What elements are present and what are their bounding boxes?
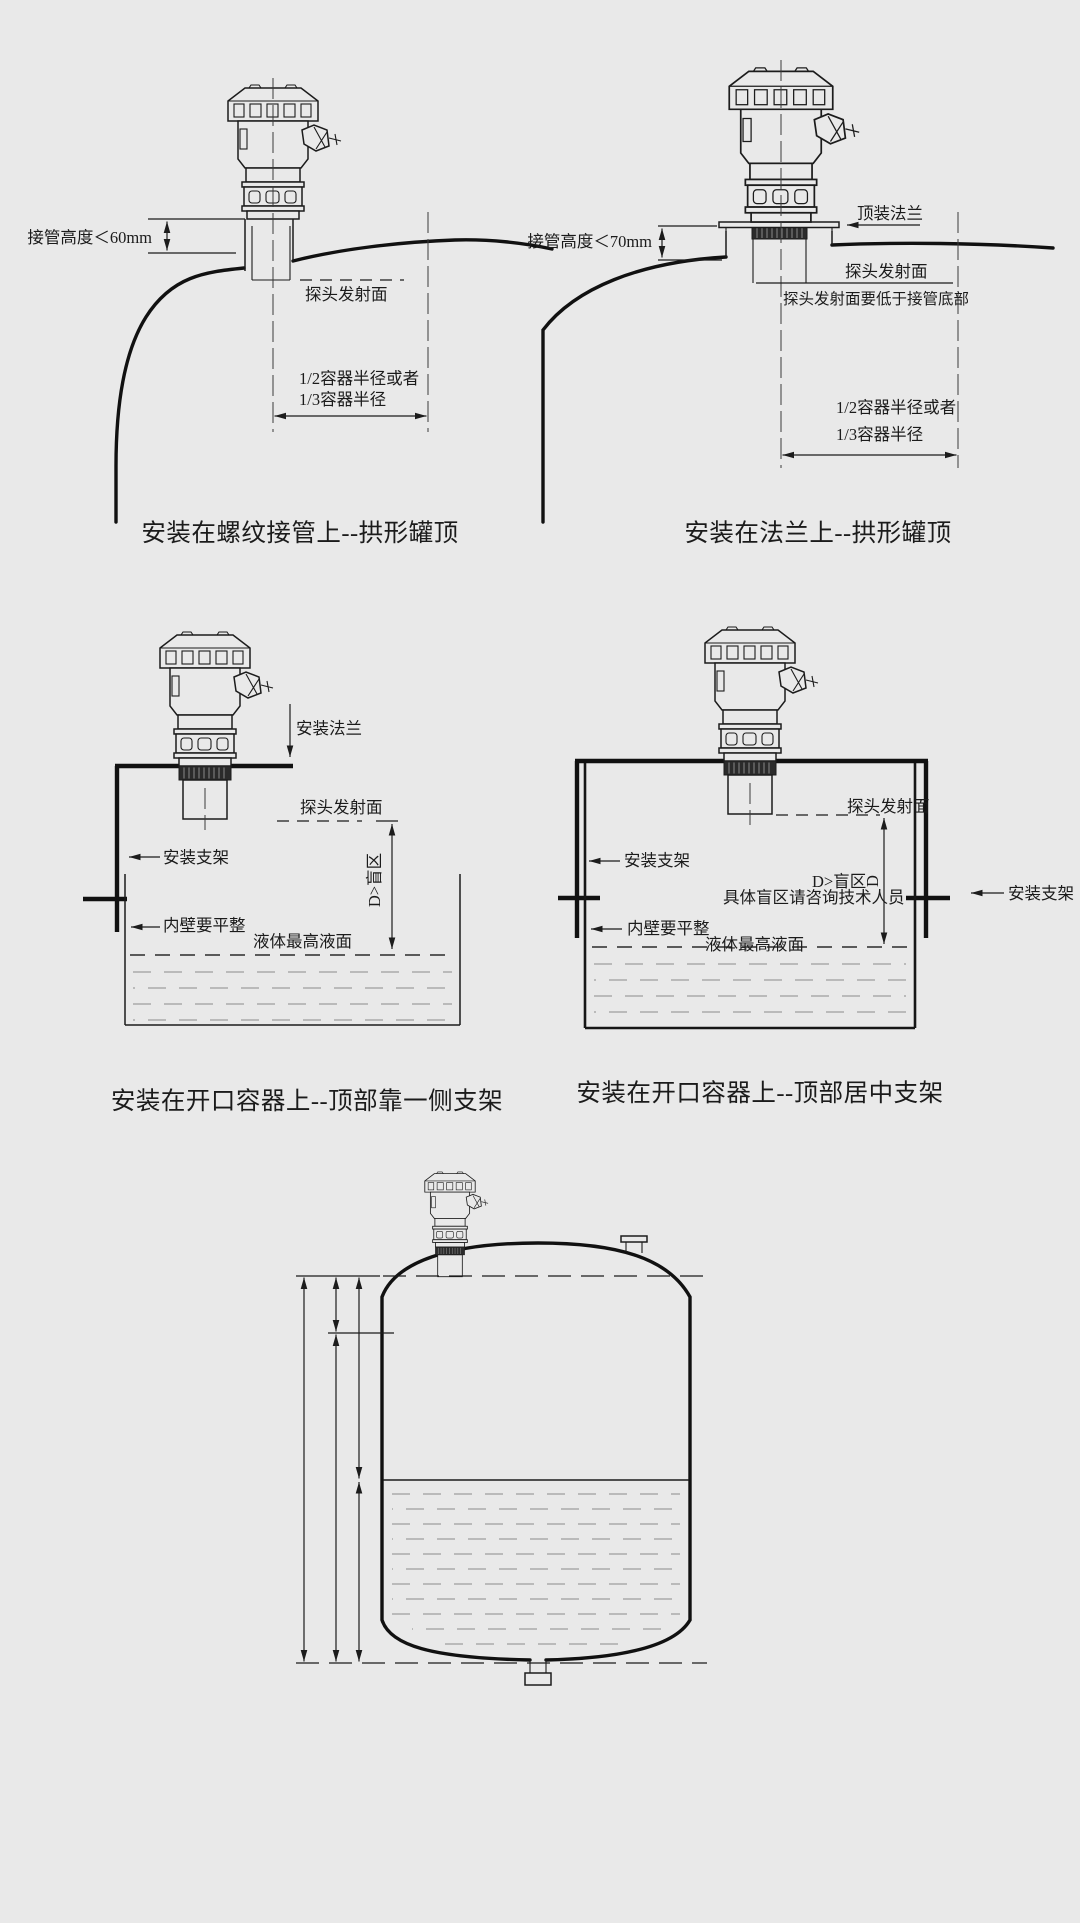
- liquid-fill: [392, 1494, 680, 1644]
- mounting-flange-label: 安装法兰: [296, 719, 362, 738]
- liquid-fill: [594, 964, 906, 1012]
- diagram-measuring-principle: [296, 1172, 707, 1685]
- bracket-label: 安装支架: [163, 848, 229, 867]
- caption-threaded-nozzle: 安装在螺纹接管上--拱形罐顶: [141, 519, 458, 547]
- emitting-face-label: 探头发射面: [300, 798, 383, 817]
- diagram-threaded-nozzle: 接管高度＜60mm 探头发射面 1/2容器半径或者 1/3容器半径 安装在螺纹接…: [27, 78, 552, 547]
- tank-roof-curve-right: [293, 240, 552, 261]
- emitting-face-label: 探头发射面: [847, 797, 930, 816]
- sensor: [705, 627, 818, 761]
- sensor: [729, 68, 859, 222]
- inner-wall-label: 内壁要平整: [163, 916, 246, 935]
- diagram-open-vessel-center-bracket: 探头发射面 D>盲区 D 具体盲区请咨询技术人员 安装支架 安装支架 内壁要平整…: [558, 627, 1074, 1107]
- tank-roof-curve-left: [543, 257, 726, 522]
- sensor: [228, 85, 341, 219]
- radius-label-2: 1/3容器半径: [836, 425, 923, 444]
- probe-horn: [753, 239, 806, 283]
- caption-side-bracket: 安装在开口容器上--顶部靠一侧支架: [111, 1087, 503, 1115]
- sensor: [160, 632, 273, 766]
- diagram-flange-mount: 顶装法兰 接管高度＜70mm 探头发射面 探头发射面要低于接管底部 1/2容器半…: [527, 60, 1053, 547]
- sensor-horn: [435, 1247, 464, 1277]
- tank-roof-curve: [116, 268, 244, 522]
- diagram-open-vessel-side-bracket: 安装法兰 探头发射面 D>盲区 安装支架 内壁要平整 液体最高液面 安装在开口容…: [83, 632, 503, 1115]
- bracket-left-label: 安装支架: [624, 851, 690, 870]
- radius-label-2: 1/3容器半径: [299, 390, 386, 409]
- emitting-face-note: 探头发射面要低于接管底部: [783, 290, 969, 308]
- bracket-right-label: 安装支架: [1008, 884, 1074, 903]
- dimension-d-label: D: [863, 875, 882, 887]
- max-level-label: 液体最高液面: [705, 935, 804, 954]
- top-flange-label: 顶装法兰: [857, 204, 923, 223]
- installation-diagram-sheet: 接管高度＜60mm 探头发射面 1/2容器半径或者 1/3容器半径 安装在螺纹接…: [0, 0, 1080, 1923]
- blind-zone-label: D>盲区: [365, 853, 384, 907]
- diagram-canvas: 接管高度＜60mm 探头发射面 1/2容器半径或者 1/3容器半径 安装在螺纹接…: [0, 0, 1080, 1923]
- max-level-label: 液体最高液面: [253, 932, 352, 951]
- bottom-outlet-nozzle: [525, 1660, 551, 1685]
- tank-roof-curve-right: [832, 243, 1053, 248]
- nozzle-height-ext-lines: [658, 226, 722, 260]
- nozzle-height-label: 接管高度＜60mm: [27, 228, 152, 247]
- tank-shell: [382, 1243, 690, 1660]
- emitting-face-label: 探头发射面: [305, 285, 388, 304]
- radius-label-1: 1/2容器半径或者: [836, 398, 956, 417]
- inner-wall-label: 内壁要平整: [627, 919, 710, 938]
- caption-flange-mount: 安装在法兰上--拱形罐顶: [684, 519, 951, 547]
- probe-horn: [252, 226, 290, 280]
- nozzle-height-ext-lines: [148, 219, 245, 253]
- blind-zone-note: 具体盲区请咨询技术人员: [723, 888, 905, 907]
- sensor: [425, 1172, 488, 1247]
- caption-center-bracket: 安装在开口容器上--顶部居中支架: [576, 1079, 943, 1107]
- radius-label-1: 1/2容器半径或者: [299, 369, 419, 388]
- liquid-fill: [133, 972, 452, 1020]
- thread-band: [752, 227, 807, 239]
- nozzle-height-label: 接管高度＜70mm: [527, 232, 652, 251]
- emitting-face-label: 探头发射面: [845, 262, 928, 281]
